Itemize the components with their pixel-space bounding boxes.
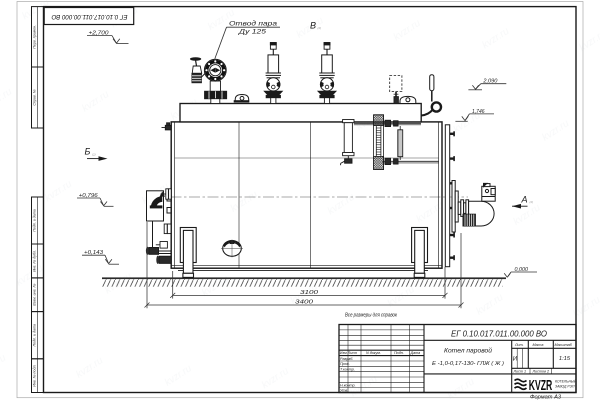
svg-text:Взам. инв. №: Взам. инв. № [33,283,37,305]
svg-text:Утв.: Утв. [340,389,348,393]
svg-text:Инв. № подл.: Инв. № подл. [33,364,37,386]
svg-text:Котел паровой: Котел паровой [444,347,493,354]
svg-text:Дата: Дата [410,351,421,355]
svg-text:N докум.: N докум. [366,351,381,355]
svg-text:Подп.: Подп. [394,351,404,355]
svg-text:Масса: Масса [533,343,544,347]
svg-text:Изм Лист: Изм Лист [340,351,357,355]
svg-text:0,000: 0,000 [515,267,529,273]
svg-text:Справ. №: Справ. № [33,89,37,105]
svg-text:Лит.: Лит. [514,343,524,347]
svg-text:Пров.: Пров. [340,362,350,366]
svg-text:1:15: 1:15 [559,356,571,362]
svg-text:Формат А3: Формат А3 [530,394,561,400]
svg-text:Подп. и дата: Подп. и дата [33,324,37,347]
svg-text:Т.контр.: Т.контр. [340,368,355,372]
svg-text:А: А [521,194,528,204]
svg-text:ЕГ 0.10.017.011.00.000 ВО: ЕГ 0.10.017.011.00.000 ВО [52,13,128,20]
svg-text:В: В [310,20,316,30]
svg-text:+0,796: +0,796 [79,193,98,199]
svg-text:КОТЕЛЬНЫЙ: КОТЕЛЬНЫЙ [555,380,577,384]
svg-text:И: И [513,356,518,363]
svg-text:Разраб.: Разраб. [340,357,353,361]
svg-text:ЗАВОД РЭП: ЗАВОД РЭП [555,385,575,389]
svg-text:Инв. № дубл.: Инв. № дубл. [33,250,37,272]
svg-text:Перв. примен.: Перв. примен. [33,25,37,49]
svg-text:+2,700: +2,700 [89,31,109,37]
svg-text:3100: 3100 [300,290,318,296]
svg-text:Листов 2: Листов 2 [532,370,550,374]
svg-text:(2): (2) [317,26,321,30]
svg-text:Все размеры для справок: Все размеры для справок [345,313,397,319]
svg-text:(2): (2) [529,200,533,204]
svg-text:Е -1,0-0,17-130- ГЛЖ ( Ж ): Е -1,0-0,17-130- ГЛЖ ( Ж ) [432,361,504,367]
svg-text:2,090: 2,090 [482,79,497,85]
svg-text:ЕГ 0.10.017.011.00.000 ВО: ЕГ 0.10.017.011.00.000 ВО [451,330,547,339]
svg-text:(2): (2) [92,153,96,157]
svg-text:+0,143: +0,143 [84,250,103,256]
svg-text:Н.контр.: Н.контр. [340,383,356,387]
svg-text:Подп. и дата: Подп. и дата [33,209,37,232]
svg-text:Лист 1: Лист 1 [513,370,527,374]
svg-text:Б: Б [85,147,91,157]
svg-text:1,746: 1,746 [472,109,485,115]
svg-text:3400: 3400 [295,299,313,305]
svg-text:Отвод пара: Отвод пара [229,20,277,28]
svg-text:Ду 125: Ду 125 [238,29,267,36]
svg-text:KVZR: KVZR [529,378,553,394]
svg-text:Масштаб: Масштаб [555,343,573,347]
